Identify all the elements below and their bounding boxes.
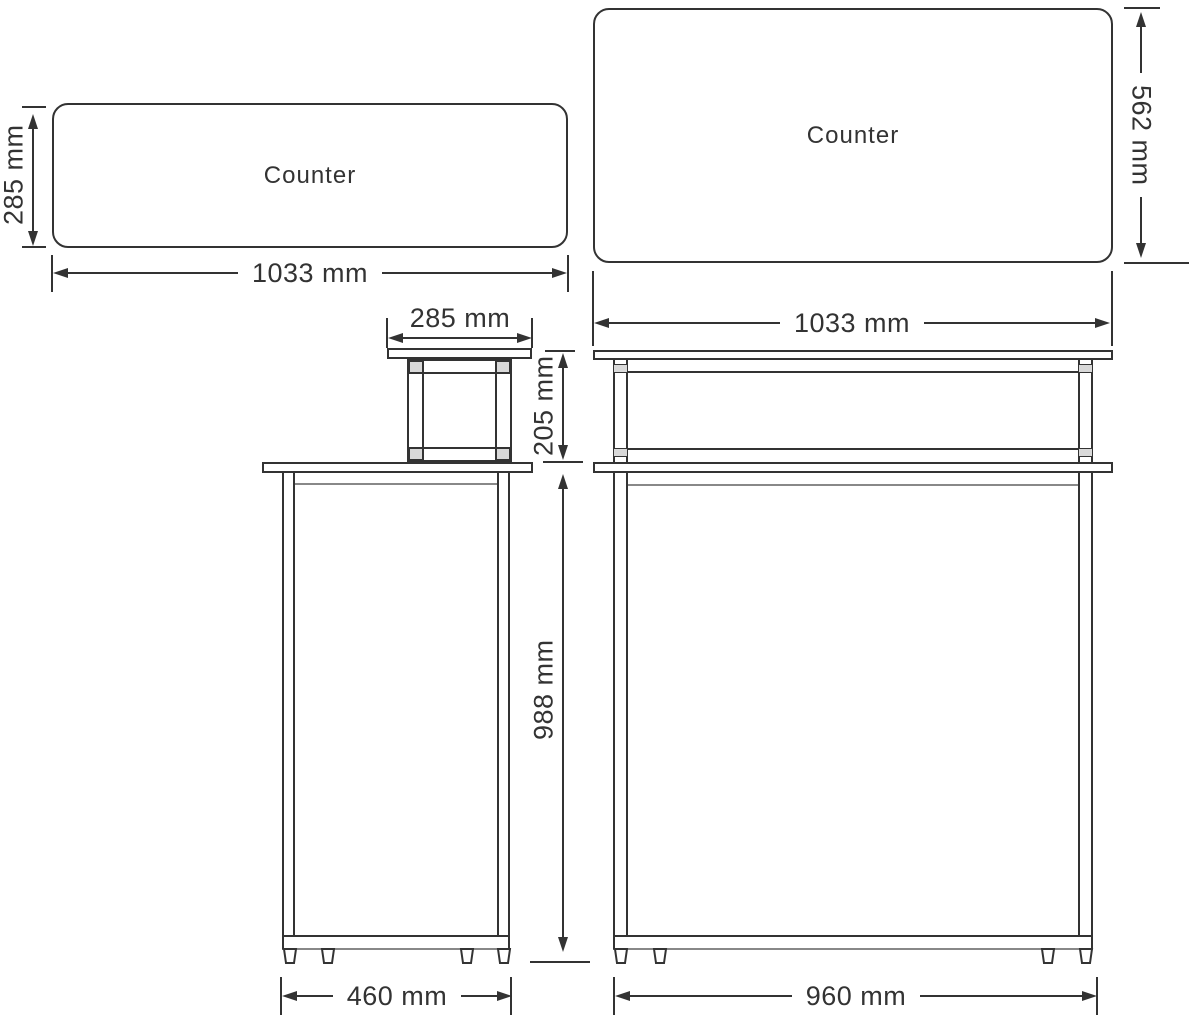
arrow-down-icon — [1136, 243, 1146, 258]
foot — [320, 948, 336, 964]
front-base-width-label: 960 mm — [792, 981, 921, 1012]
technical-drawing-canvas: Counter 285 mm 1033 mm Counter 562 mm 10… — [0, 0, 1189, 1017]
plan-right-height-label: 562 mm — [1126, 73, 1157, 198]
side-riser-height-label: 205 mm — [530, 350, 558, 462]
foot — [459, 948, 475, 964]
plan-right-height-tick-bottom — [1124, 262, 1189, 264]
front-shelf-board — [593, 350, 1113, 360]
riser-connector-block — [613, 448, 628, 457]
side-under-tick-bottom — [530, 961, 590, 963]
arrow-up-icon — [28, 114, 38, 129]
arrow-down-icon — [558, 937, 568, 952]
riser-corner-block — [496, 448, 510, 460]
riser-post-inner-right — [495, 361, 497, 460]
foot — [613, 948, 629, 964]
side-counter-board — [262, 462, 533, 473]
riser-connector-block — [1078, 448, 1093, 457]
front-riser-post-right — [1078, 360, 1093, 462]
front-top-width-label: 1033 mm — [780, 308, 924, 339]
arrow-right-icon — [552, 268, 567, 278]
arrow-left-icon — [53, 268, 68, 278]
side-under-height-label: 988 mm — [530, 600, 558, 780]
front-riser-rail-top — [613, 371, 1093, 373]
arrow-left-icon — [388, 333, 403, 343]
foot — [282, 948, 298, 964]
side-riser-frame — [407, 359, 512, 462]
side-base-depth-label: 460 mm — [333, 981, 462, 1012]
front-base-width-dimension: 960 mm — [615, 979, 1097, 1013]
front-riser-rail-bottom — [613, 448, 1093, 450]
riser-connector-block — [613, 364, 628, 373]
arrow-up-icon — [558, 474, 568, 489]
arrow-right-icon — [1095, 318, 1110, 328]
side-leg-right — [497, 473, 510, 949]
plan-right-height-dimension: 562 mm — [1135, 12, 1147, 258]
foot — [1040, 948, 1056, 964]
riser-connector-block — [1078, 364, 1093, 373]
front-leg-right — [1078, 473, 1093, 949]
side-apron-line — [295, 483, 497, 485]
plan-left-width-label: 1033 mm — [238, 258, 382, 289]
side-leg-left — [282, 473, 295, 949]
foot — [496, 948, 512, 964]
front-top-width-dimension: 1033 mm — [594, 306, 1110, 340]
foot — [652, 948, 668, 964]
arrow-up-icon — [558, 353, 568, 368]
plan-left-width-dimension: 1033 mm — [53, 256, 567, 290]
front-bottom-rail — [613, 935, 1093, 950]
foot — [1078, 948, 1094, 964]
arrow-left-icon — [615, 991, 630, 1001]
plan-left-depth-label: 285 mm — [0, 105, 28, 245]
plan-left-counter-label: Counter — [52, 103, 568, 248]
front-width-ext-right — [1111, 271, 1113, 346]
riser-rail-bottom — [409, 447, 510, 449]
riser-post-inner-left — [422, 361, 424, 460]
front-apron-line — [628, 484, 1078, 486]
plan-right-counter-label: Counter — [593, 8, 1113, 263]
arrow-down-icon — [28, 231, 38, 246]
plan-left-depth-tick-bottom — [22, 246, 46, 248]
arrow-right-icon — [1082, 991, 1097, 1001]
arrow-up-icon — [1136, 12, 1146, 27]
arrow-right-icon — [517, 333, 532, 343]
arrow-down-icon — [558, 445, 568, 460]
arrow-left-icon — [594, 318, 609, 328]
front-riser-post-left — [613, 360, 628, 462]
side-base-depth-dimension: 460 mm — [282, 979, 512, 1013]
side-bottom-rail — [282, 935, 510, 950]
plan-left-width-tick-right — [567, 255, 569, 292]
plan-right-height-tick-top — [1124, 7, 1160, 9]
riser-corner-block — [409, 448, 423, 460]
riser-rail-top — [409, 372, 510, 374]
arrow-right-icon — [497, 991, 512, 1001]
front-leg-left — [613, 473, 628, 949]
side-shelf-board — [387, 348, 532, 359]
front-counter-board — [593, 462, 1113, 473]
arrow-left-icon — [282, 991, 297, 1001]
